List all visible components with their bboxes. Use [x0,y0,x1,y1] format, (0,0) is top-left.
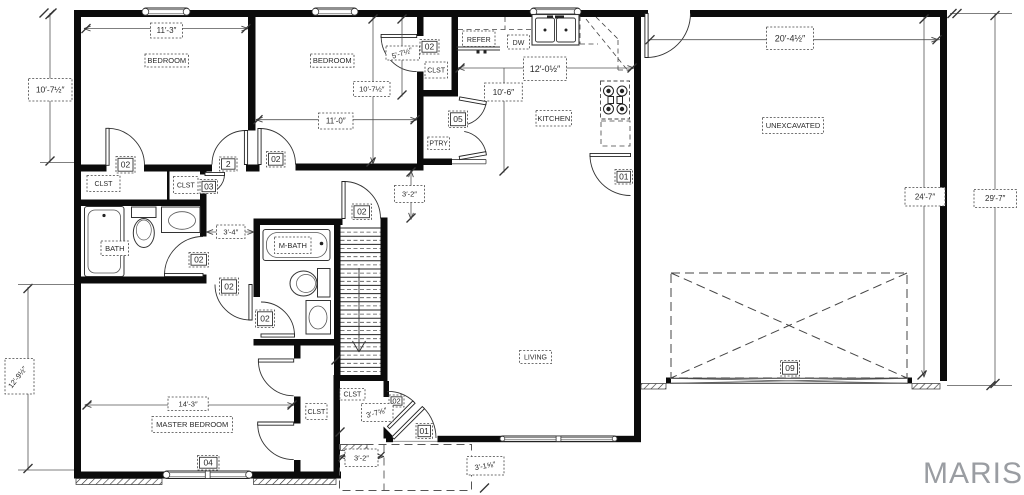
svg-text:UNEXCAVATED: UNEXCAVATED [766,121,821,130]
svg-text:01: 01 [619,172,629,182]
svg-text:MASTER BEDROOM: MASTER BEDROOM [156,420,228,429]
svg-text:10′-6″: 10′-6″ [493,87,515,97]
svg-text:REFER: REFER [467,37,491,44]
svg-text:MARIS: MARIS [923,457,1023,490]
svg-text:PTRY: PTRY [429,141,448,148]
svg-text:KITCHEN: KITCHEN [537,114,570,123]
svg-text:04: 04 [203,458,213,468]
svg-text:3′-4″: 3′-4″ [223,227,238,236]
svg-text:29′-7″: 29′-7″ [985,194,1006,203]
svg-text:01: 01 [419,426,429,436]
svg-text:CLST: CLST [177,182,196,189]
svg-text:03: 03 [204,181,214,191]
svg-text:02: 02 [194,255,204,265]
svg-text:LIVING: LIVING [524,354,547,361]
svg-text:02: 02 [271,154,281,164]
svg-text:CLST: CLST [307,409,326,416]
svg-text:10′-7½″: 10′-7½″ [359,85,385,94]
svg-text:02: 02 [224,281,234,291]
svg-text:02: 02 [260,314,270,324]
svg-text:02: 02 [121,160,131,170]
svg-text:CLST: CLST [343,392,362,399]
svg-text:02: 02 [425,42,435,52]
svg-text:3′-2″: 3′-2″ [402,190,417,199]
svg-text:24′-7″: 24′-7″ [915,193,936,202]
svg-text:CLST: CLST [95,181,114,188]
svg-text:BEDROOM: BEDROOM [147,56,186,65]
svg-text:05: 05 [453,114,463,124]
svg-text:02: 02 [392,397,400,406]
svg-text:11′-3″: 11′-3″ [157,26,177,35]
svg-text:14′-3″: 14′-3″ [179,399,198,408]
svg-text:M-BATH: M-BATH [279,241,307,250]
svg-text:CLST: CLST [427,67,446,74]
svg-text:09: 09 [785,363,795,373]
svg-text:10′-7½″: 10′-7½″ [36,85,65,95]
svg-text:BEDROOM: BEDROOM [313,56,352,65]
svg-text:02: 02 [357,207,367,217]
svg-text:20′-4½″: 20′-4½″ [775,33,806,43]
svg-text:DW: DW [513,40,525,47]
svg-text:11′-0″: 11′-0″ [326,117,346,126]
svg-text:3′-2″: 3′-2″ [354,453,369,462]
svg-text:BATH: BATH [105,244,124,253]
svg-text:12′-0½″: 12′-0½″ [530,64,561,74]
svg-text:2: 2 [226,159,231,169]
